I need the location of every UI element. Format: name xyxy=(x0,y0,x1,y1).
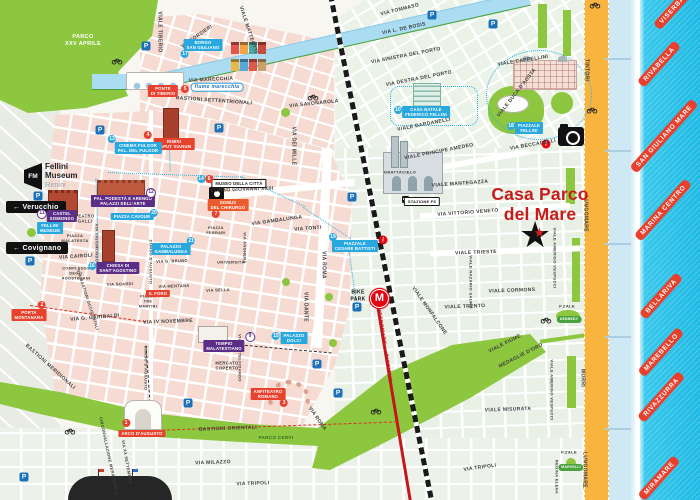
poi-label: MUSEO DELLA CITTÀ614 xyxy=(211,172,266,190)
parking-icon: P xyxy=(96,126,105,135)
poi-number-badge: 6 xyxy=(205,175,213,183)
poi-number-badge: 20 xyxy=(150,209,158,217)
street-label: P.ZALE xyxy=(561,449,577,454)
green-strip xyxy=(567,356,576,408)
poi-label: STAZIONE FS xyxy=(404,190,440,208)
tree xyxy=(27,228,36,237)
poi-label: DOMUS DEL CHIRURGO7 xyxy=(208,196,249,214)
street-label: VIALE NAZARIO SAURO xyxy=(468,255,473,308)
info-icon: i xyxy=(379,236,388,245)
poi-number-badge: 9 xyxy=(245,332,255,342)
poi-pill: CHIESA DI SANT'AGOSTINO xyxy=(96,262,139,275)
bicycle-icon xyxy=(541,311,552,329)
star-inner-icon: ★ xyxy=(534,225,546,241)
poi-number-badge: 7 xyxy=(212,210,220,218)
street-label: PARCO XXV APRILE xyxy=(65,34,101,48)
poi-number-badge: 17 xyxy=(181,50,189,58)
street-label: fiume marecchia xyxy=(191,83,244,92)
poi-label: IL FORO xyxy=(146,282,170,300)
poi-label: CINEMA FULGOR PAL. DEL FULGOR13 xyxy=(115,139,162,157)
street-label: PARCO CERVI xyxy=(259,435,294,441)
parking-icon: P xyxy=(489,20,498,29)
bicycle-icon xyxy=(590,0,601,14)
street-label: VIA ROMA xyxy=(320,251,327,279)
parking-icon: P xyxy=(313,360,322,369)
bicycle-icon xyxy=(371,402,382,420)
street-label: VIA G. BRUNO xyxy=(156,258,188,264)
bicycle-icon xyxy=(65,422,76,440)
street-label: VIA TRIPOLI xyxy=(236,480,269,488)
fm-logo-line3: Rimini xyxy=(45,181,77,189)
green-strip xyxy=(563,10,571,56)
grattacielo-tower-icon xyxy=(391,136,399,168)
destination-title-line1: Casa Parco xyxy=(478,184,602,204)
poi-number-badge: 12 xyxy=(146,188,156,198)
street-label: TINTORI xyxy=(583,59,590,81)
poi-label: MARVELLI xyxy=(558,455,583,473)
parking-icon: P xyxy=(348,193,357,202)
poi-pill: FELLINI MUSEUM xyxy=(37,222,63,235)
street-label: VIA SELLA xyxy=(206,287,230,293)
parking-icon: P xyxy=(20,473,29,482)
street-label: MURRI xyxy=(579,369,586,387)
poi-label: PALAZZO DOLCI15 xyxy=(281,329,308,347)
poi-pill: PORTA MONTANARA xyxy=(12,309,47,322)
poi-label: PIAZZALE CESARE BATTISTI19 xyxy=(332,237,378,255)
street-label: UNIVERSITÀ xyxy=(217,259,245,264)
street-label: VIALE AMERIGO VESPUCCI xyxy=(549,359,554,420)
poi-number-badge: 2 xyxy=(38,301,46,309)
poi-number-badge: 11 xyxy=(37,209,47,219)
poi-number-badge: 16 xyxy=(88,262,96,270)
poi-pill: ARCO D'AUGUSTO xyxy=(118,430,165,437)
city-walls-monument-icon xyxy=(68,476,172,500)
street-label: VIA MILAZZO xyxy=(195,459,231,467)
poi-label: PIAZZALE FELLINI18 xyxy=(515,119,543,137)
poi-label: BORGO SAN GIULIANO17 xyxy=(184,36,223,54)
destination-star-marker: ★ ★ xyxy=(519,216,557,254)
poi-number-badge: 14 xyxy=(197,175,205,183)
poi-pill: MUSEO DELLA CITTÀ xyxy=(211,179,266,188)
street-label: COMPLESSO DEGLI AGOSTINIANI xyxy=(62,267,91,282)
street-label: GRATTACIELO xyxy=(384,169,416,174)
street-label: VIA DEI MILLE xyxy=(290,127,297,166)
poi-label: PALAZZO GAMBALUNGA21 xyxy=(152,240,191,258)
green-strip xyxy=(538,4,547,48)
poi-pill: IL FORO xyxy=(146,290,170,297)
poi-number-badge: 19 xyxy=(329,233,337,241)
poi-pill: TEMPIO MALATESTIANO xyxy=(203,340,244,353)
poi-pill: ANFITEATRO ROMANO xyxy=(251,388,286,401)
parking-icon: P xyxy=(334,389,343,398)
tree xyxy=(329,339,337,347)
fellini-museum-logo: FM Fellini Museum Rimini xyxy=(24,163,77,190)
street-label: CORSO D'AUGUSTO xyxy=(143,346,148,391)
sant-agostino-tower-icon xyxy=(102,230,115,262)
street-label: TEATRO GALLI xyxy=(75,214,94,225)
parking-icon: P xyxy=(428,11,437,20)
parking-icon: P xyxy=(142,42,151,51)
street-label: BIKE PARK xyxy=(350,290,365,303)
sign-covignano: ← Covignano xyxy=(6,242,68,254)
fm-logo-mark: FM xyxy=(24,163,42,190)
poi-number-badge: 4 xyxy=(144,131,152,139)
poi-pill: STAZIONE FS xyxy=(404,197,440,206)
poi-number-badge: 18 xyxy=(507,122,515,130)
tree xyxy=(282,278,290,286)
street-label: VIA SOARDI xyxy=(107,281,134,287)
poi-number-badge: 13 xyxy=(108,135,116,143)
pier xyxy=(605,336,631,338)
map-canvas[interactable]: M Casa Parco del Mare ★ ★ ← Verucchio ← … xyxy=(0,0,700,500)
poi-label: CASA NATALE FEDERICO FELLINI10 xyxy=(402,103,450,121)
street-label: MERCATO COPERTO xyxy=(215,361,238,372)
poi-pill: PIAZZA CAVOUR xyxy=(111,213,154,220)
camera-photo-spot-icon xyxy=(558,127,584,146)
poi-label: PIAZZA CAVOUR20 xyxy=(111,205,154,223)
poi-number-badge: 21 xyxy=(187,237,195,245)
poi-label: ANFITEATRO ROMANO3 xyxy=(251,385,286,403)
poi-pill: KENNEDY xyxy=(557,316,582,323)
pier xyxy=(605,243,631,245)
street-label: VIALE TIBERIO xyxy=(156,12,163,53)
poi-pill: PALAZZO GAMBALUNGA xyxy=(152,243,191,256)
parking-icon: P xyxy=(215,124,224,133)
poi-number-badge: 1 xyxy=(122,419,130,427)
poi-label: FELLINI MUSEUM xyxy=(37,219,63,237)
bicycle-icon xyxy=(112,52,123,70)
bicycle-icon xyxy=(587,101,598,119)
poi-pill: PALAZZO DOLCI xyxy=(281,332,308,345)
pier xyxy=(605,58,631,60)
tree xyxy=(325,293,333,301)
poi-pill: CASA NATALE FEDERICO FELLINI xyxy=(402,106,450,119)
poi-pill: PIAZZALE CESARE BATTISTI xyxy=(332,240,378,253)
poi-label: TEMPIO MALATESTIANO9 xyxy=(203,337,244,355)
pier xyxy=(605,428,631,430)
pier xyxy=(605,150,631,152)
street-label: VIA DANTE xyxy=(302,292,309,322)
poi-number-badge: 15 xyxy=(272,332,280,340)
poi-label: PORTA MONTANARA2 xyxy=(12,306,47,324)
poi-pill: MARVELLI xyxy=(558,464,583,471)
poi-label: PONTE DI TIBERIO5 xyxy=(148,82,178,100)
poi-label: CHIESA DI SANT'AGOSTINO16 xyxy=(96,259,139,277)
poi-pill: CINEMA FULGOR PAL. DEL FULGOR xyxy=(115,142,162,155)
poi-pill: PIAZZALE FELLINI xyxy=(515,122,543,135)
poi-label: ARCO D'AUGUSTO1 xyxy=(118,422,165,440)
parking-icon: P xyxy=(34,192,43,201)
street-label: PIAZZA FERRARI xyxy=(206,226,225,236)
poi-number-badge: 10 xyxy=(394,106,402,114)
street-label: VIA SIGISMONDO xyxy=(94,224,99,263)
parking-icon: P xyxy=(26,257,35,266)
poi-number-badge: 3 xyxy=(280,399,288,407)
poi-pill: BORGO SAN GIULIANO xyxy=(184,39,223,52)
metromare-logo: M xyxy=(370,289,389,308)
poi-label: KENNEDY xyxy=(557,307,582,325)
poi-pill: PONTE DI TIBERIO xyxy=(148,85,178,98)
parking-icon: P xyxy=(184,399,193,408)
poi-number-badge: 5 xyxy=(181,85,189,93)
parking-icon: P xyxy=(353,303,362,312)
